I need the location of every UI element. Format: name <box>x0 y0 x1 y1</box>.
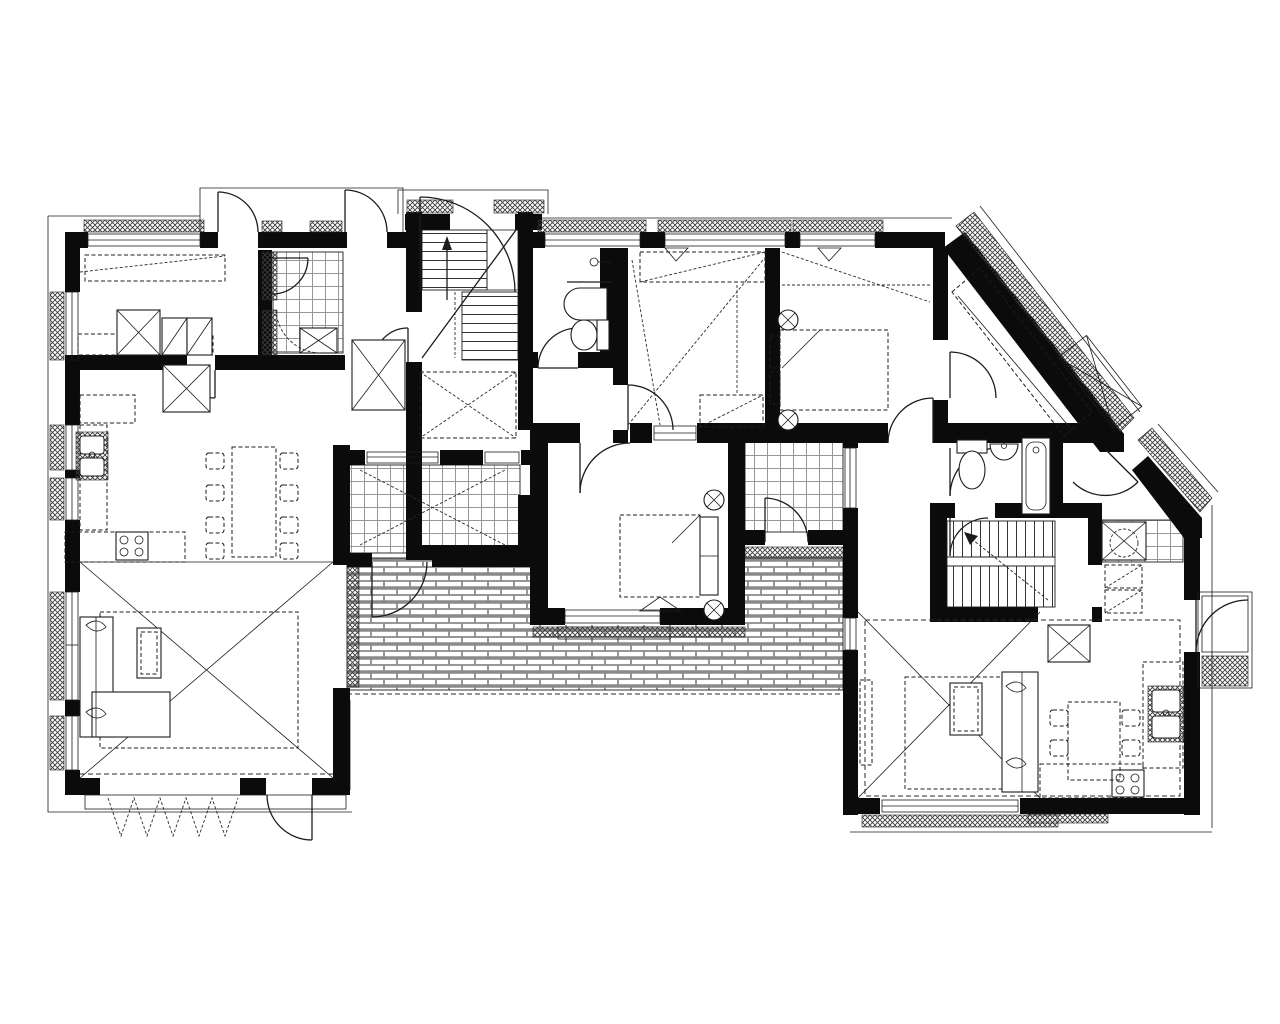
window <box>845 618 856 650</box>
kitchen-sink-icon <box>76 432 108 480</box>
porch-step <box>1202 656 1248 686</box>
wardrobe-icon <box>117 310 160 355</box>
folding-door <box>85 795 346 836</box>
chair-icon <box>280 485 298 501</box>
toilet-icon <box>571 320 609 350</box>
window <box>538 220 646 246</box>
door-swing <box>218 192 258 232</box>
dining-area-right <box>1050 702 1140 780</box>
wardrobe-icon <box>1048 625 1090 662</box>
coffee-table-icon <box>950 683 982 735</box>
kitchen-sink-icon <box>1148 686 1184 742</box>
washbasin-icon <box>564 288 607 320</box>
chair-icon <box>1050 710 1068 726</box>
bathroom-right <box>957 438 1050 514</box>
diagonal-wall <box>943 232 1124 452</box>
dining-table-icon <box>1068 702 1120 780</box>
bedroom-north-1 <box>628 252 765 427</box>
corridor <box>352 340 405 410</box>
window <box>367 452 438 463</box>
faucet-icon <box>590 258 598 266</box>
chair-icon <box>280 543 298 559</box>
window <box>84 220 204 246</box>
shelf <box>860 680 872 765</box>
chair-icon <box>1122 710 1140 726</box>
window <box>50 592 78 700</box>
sofa-icon <box>1002 672 1038 792</box>
stool-icon <box>778 310 798 430</box>
window <box>485 452 519 463</box>
cabinet-icon <box>80 395 135 423</box>
door-swing <box>267 795 312 840</box>
coffee-table-icon <box>137 628 161 678</box>
door-swing <box>888 398 933 443</box>
chair-icon <box>1122 740 1140 756</box>
staircase-right <box>947 521 1055 607</box>
window <box>50 478 78 520</box>
kitchen-right <box>1040 662 1184 798</box>
bathroom-central-tiles <box>745 440 843 532</box>
bedroom-north-2 <box>770 252 930 430</box>
chair-icon <box>206 453 224 469</box>
bed-icon <box>770 330 888 410</box>
dining-area-left <box>206 447 298 559</box>
chair-icon <box>280 517 298 533</box>
door-swing <box>1073 450 1138 495</box>
chair-icon <box>280 453 298 469</box>
stove-icon <box>1112 770 1144 797</box>
stairs-icon <box>947 521 1055 557</box>
chair-icon <box>206 543 224 559</box>
bathtub-icon <box>1022 438 1050 514</box>
tl-bedroom <box>78 255 225 355</box>
kitchen-left <box>65 365 210 562</box>
cabinet-icon <box>162 318 212 355</box>
window <box>50 425 78 470</box>
wardrobe-icon <box>85 255 225 281</box>
window <box>50 292 78 360</box>
door-swing <box>1196 600 1248 652</box>
stairs-icon <box>422 230 487 290</box>
cabinet-icon <box>1105 565 1142 613</box>
stove-icon <box>116 532 148 560</box>
floor-plan-page <box>0 0 1280 1024</box>
window <box>793 220 883 261</box>
chair-icon <box>206 517 224 533</box>
window <box>50 716 78 770</box>
door-swing <box>950 352 996 398</box>
floor-plan-svg <box>0 0 1280 1024</box>
entrance-porch <box>1198 592 1252 688</box>
toilet-icon <box>957 440 987 489</box>
window <box>845 448 856 508</box>
window <box>262 221 342 232</box>
chair-icon <box>206 485 224 501</box>
living-room-left <box>80 562 333 778</box>
door-swing <box>345 190 387 232</box>
dining-table-icon <box>232 447 276 557</box>
understair-storage <box>420 372 516 438</box>
main-staircase <box>420 230 518 438</box>
washbasin-icon <box>990 444 1018 461</box>
chair-icon <box>1050 740 1068 756</box>
kitchen-island-icon <box>163 365 210 412</box>
window <box>407 200 544 213</box>
